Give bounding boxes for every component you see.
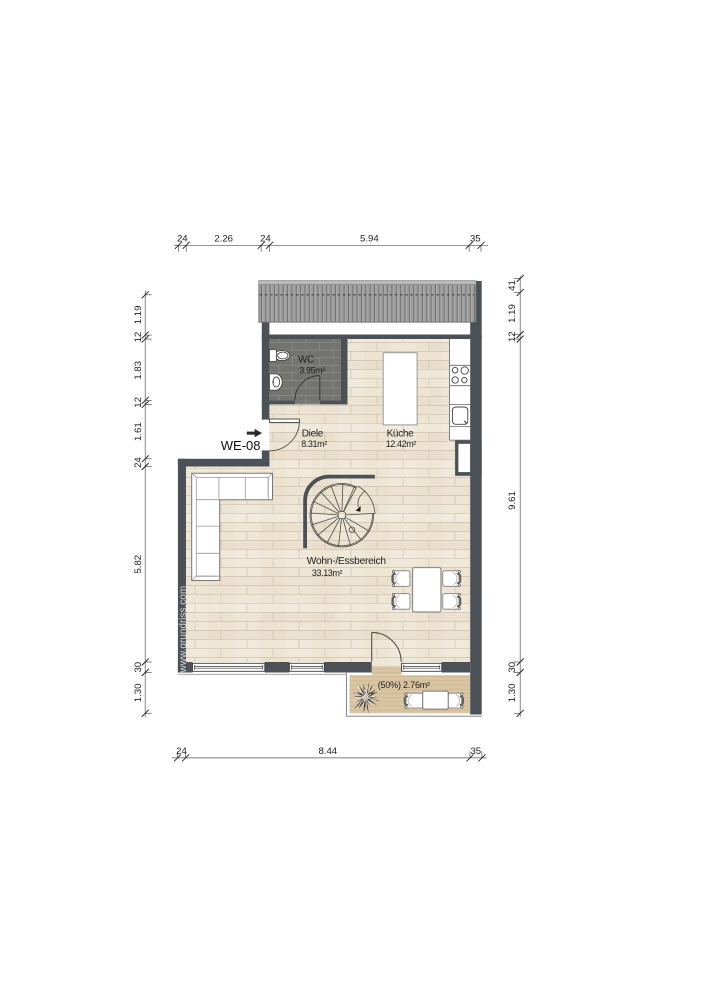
svg-text:1.30: 1.30	[133, 684, 144, 703]
svg-text:1.83: 1.83	[133, 361, 144, 380]
svg-text:1.19: 1.19	[507, 304, 518, 323]
svg-text:3.95m²: 3.95m²	[299, 365, 325, 375]
svg-text:8.31m²: 8.31m²	[301, 439, 327, 449]
svg-text:Küche: Küche	[387, 428, 415, 439]
svg-text:(50%) 2.76m²: (50%) 2.76m²	[378, 680, 430, 690]
svg-text:24: 24	[176, 746, 187, 757]
svg-text:24: 24	[260, 234, 271, 245]
svg-text:1.19: 1.19	[133, 306, 144, 325]
svg-text:33.13m²: 33.13m²	[312, 568, 343, 578]
svg-text:9.61: 9.61	[507, 491, 518, 510]
svg-text:WE-08: WE-08	[221, 438, 261, 453]
svg-text:12: 12	[133, 332, 144, 343]
svg-text:12: 12	[133, 397, 144, 408]
svg-text:30: 30	[133, 662, 144, 673]
svg-text:2.26: 2.26	[214, 234, 233, 245]
svg-text:24: 24	[177, 234, 188, 245]
svg-text:1.30: 1.30	[507, 684, 518, 703]
svg-text:Diele: Diele	[302, 428, 324, 439]
svg-text:24: 24	[133, 457, 144, 468]
svg-text:WC: WC	[298, 354, 314, 365]
svg-text:35: 35	[470, 746, 481, 757]
svg-text:5.82: 5.82	[133, 555, 144, 574]
svg-text:1.61: 1.61	[133, 422, 144, 441]
svg-text:12: 12	[507, 331, 518, 342]
svg-text:12.42m²: 12.42m²	[386, 439, 417, 449]
svg-text:Wohn-/Essbereich: Wohn-/Essbereich	[307, 556, 386, 567]
svg-text:41: 41	[507, 280, 518, 291]
svg-text:35: 35	[470, 234, 481, 245]
svg-text:www.grundriss.com: www.grundriss.com	[178, 586, 189, 674]
svg-text:5.94: 5.94	[360, 234, 379, 245]
svg-text:8.44: 8.44	[318, 746, 337, 757]
svg-text:30: 30	[507, 662, 518, 673]
